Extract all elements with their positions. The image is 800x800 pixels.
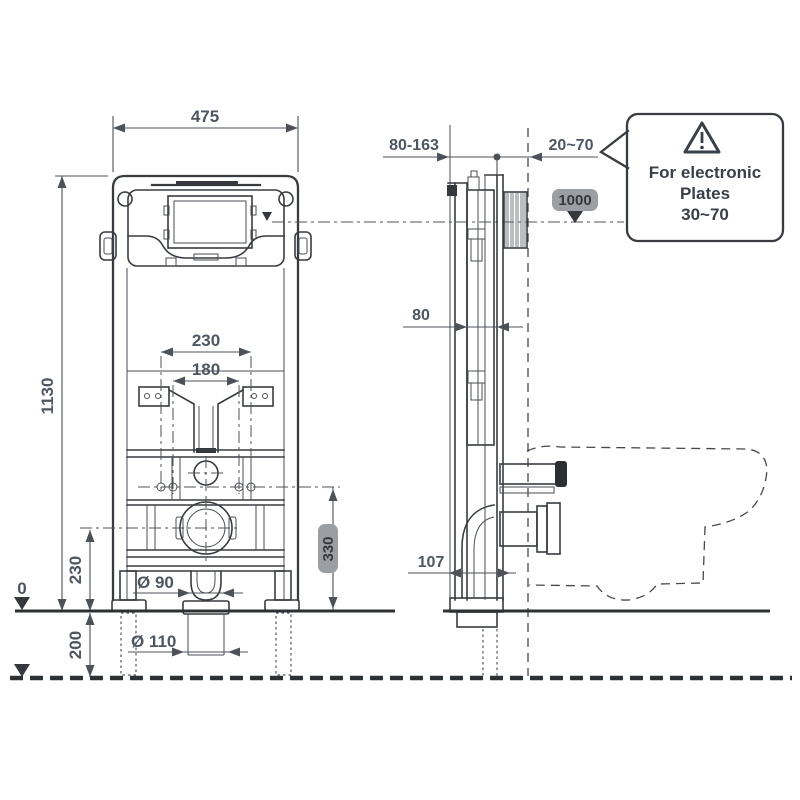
dim-drain-dia-label: Ø 110 [131, 632, 176, 651]
dim-floor-depth-label: 200 [66, 631, 85, 659]
flush-pipe-cap [555, 461, 567, 487]
dim-fixing-inner-label: 180 [192, 360, 220, 379]
dim-profile-depth-label: 80 [412, 307, 430, 324]
cistern-profile [467, 171, 494, 445]
dim-frame-width-label: 475 [191, 107, 219, 126]
dim-outlet-offset-label: 107 [418, 554, 445, 571]
callout-line-3: 30~70 [681, 205, 729, 224]
access-panel [164, 196, 256, 248]
zero-level-label: 0 [17, 579, 26, 598]
flush-plate-hatched [504, 192, 527, 248]
flush-pipe-connection [500, 461, 567, 493]
callout-line-1: For electronic [649, 163, 761, 182]
dim-wall-thickness-label: 20~70 [549, 137, 594, 154]
dim-frame-height-label: 1130 [38, 378, 57, 415]
dim-flush-dia-label: Ø 90 [137, 573, 174, 592]
dim-depth-adjust-label: 80-163 [389, 137, 439, 154]
sub-level-mark-icon [14, 664, 30, 677]
side-outlet-elbow [450, 505, 503, 676]
drain-connection [500, 503, 560, 554]
callout-bubble: For electronic Plates 30~70 [601, 114, 783, 241]
fixing-bolt-holes [138, 356, 340, 494]
callout-line-2: Plates [680, 184, 730, 203]
level-mark-icon [14, 597, 30, 610]
supply-connection [188, 456, 224, 491]
cistern-tank [128, 181, 284, 266]
tank-top-bar [176, 181, 238, 186]
water-level-mark-icon [262, 212, 272, 221]
flush-funnel [169, 390, 243, 453]
installation-drawing: 475 1130 230 180 230 [0, 0, 800, 800]
badge-plate-height-label: 1000 [558, 192, 591, 209]
plate-level-mark-icon [567, 211, 583, 223]
badge-outlet-height-label: 330 [320, 536, 337, 561]
front-view: 475 1130 230 180 230 [14, 107, 340, 677]
dim-fixing-outer-label: 230 [192, 331, 220, 350]
dim-outlet-height-label: 230 [66, 556, 85, 584]
warning-triangle-icon [685, 123, 719, 152]
floor-lines [10, 611, 792, 678]
